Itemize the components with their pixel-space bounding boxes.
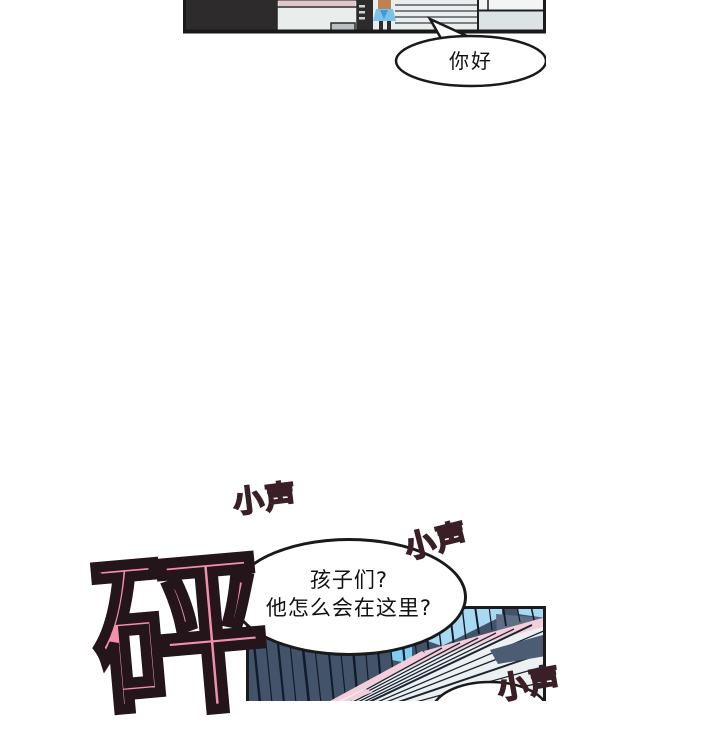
whisper-sfx-2: 小声 xyxy=(400,509,473,567)
whisper-sfx-3: 小声 xyxy=(494,654,565,708)
dark-wall xyxy=(185,0,277,31)
door-frame xyxy=(357,0,373,31)
dialog-text: 孩子们? 他怎么会在这里? xyxy=(266,566,432,628)
whisper-sfx-1: 小声 xyxy=(231,470,300,521)
bang-sfx: 砰 xyxy=(86,544,276,734)
hello-text: 你好 xyxy=(449,49,493,73)
dialog-line-2: 他怎么会在这里? xyxy=(266,594,432,622)
dialog-line-1: 孩子们? xyxy=(266,566,432,594)
cabinet xyxy=(478,0,544,31)
top-panel-room xyxy=(185,0,544,31)
character-hair xyxy=(378,0,391,9)
top-comic-panel: 你好 xyxy=(183,0,546,92)
webtoon-page: { "page": {"background": "#ffffff"}, "to… xyxy=(0,0,720,701)
